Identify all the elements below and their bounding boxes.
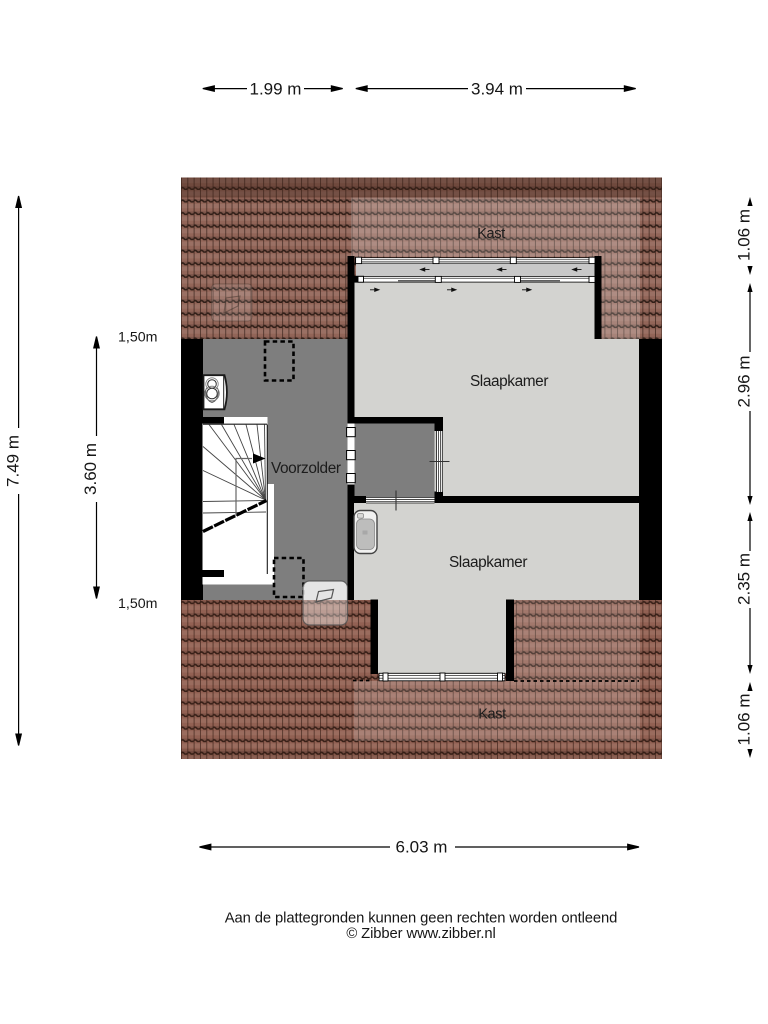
svg-text:Voorzolder: Voorzolder [271, 460, 341, 477]
svg-text:6.03 m: 6.03 m [396, 837, 448, 856]
svg-text:7.49 m: 7.49 m [3, 435, 22, 487]
svg-text:1.06 m: 1.06 m [735, 694, 754, 746]
svg-text:1.06 m: 1.06 m [735, 209, 754, 261]
svg-text:2.35 m: 2.35 m [735, 553, 754, 605]
svg-text:Aan de plattegronden kunnen ge: Aan de plattegronden kunnen geen rechten… [225, 911, 618, 927]
svg-text:Slaapkamer: Slaapkamer [470, 373, 548, 390]
svg-text:Kast: Kast [478, 707, 506, 723]
svg-text:1.99 m: 1.99 m [250, 79, 302, 98]
svg-text:3.60 m: 3.60 m [81, 443, 100, 495]
svg-text:Slaapkamer: Slaapkamer [449, 554, 527, 571]
svg-text:1,50m: 1,50m [118, 596, 157, 612]
svg-text:Kast: Kast [477, 226, 505, 242]
svg-text:3.94 m: 3.94 m [471, 79, 523, 98]
svg-text:1,50m: 1,50m [118, 330, 157, 346]
svg-text:© Zibber www.zibber.nl: © Zibber www.zibber.nl [346, 926, 495, 942]
svg-text:2.96 m: 2.96 m [735, 356, 754, 408]
